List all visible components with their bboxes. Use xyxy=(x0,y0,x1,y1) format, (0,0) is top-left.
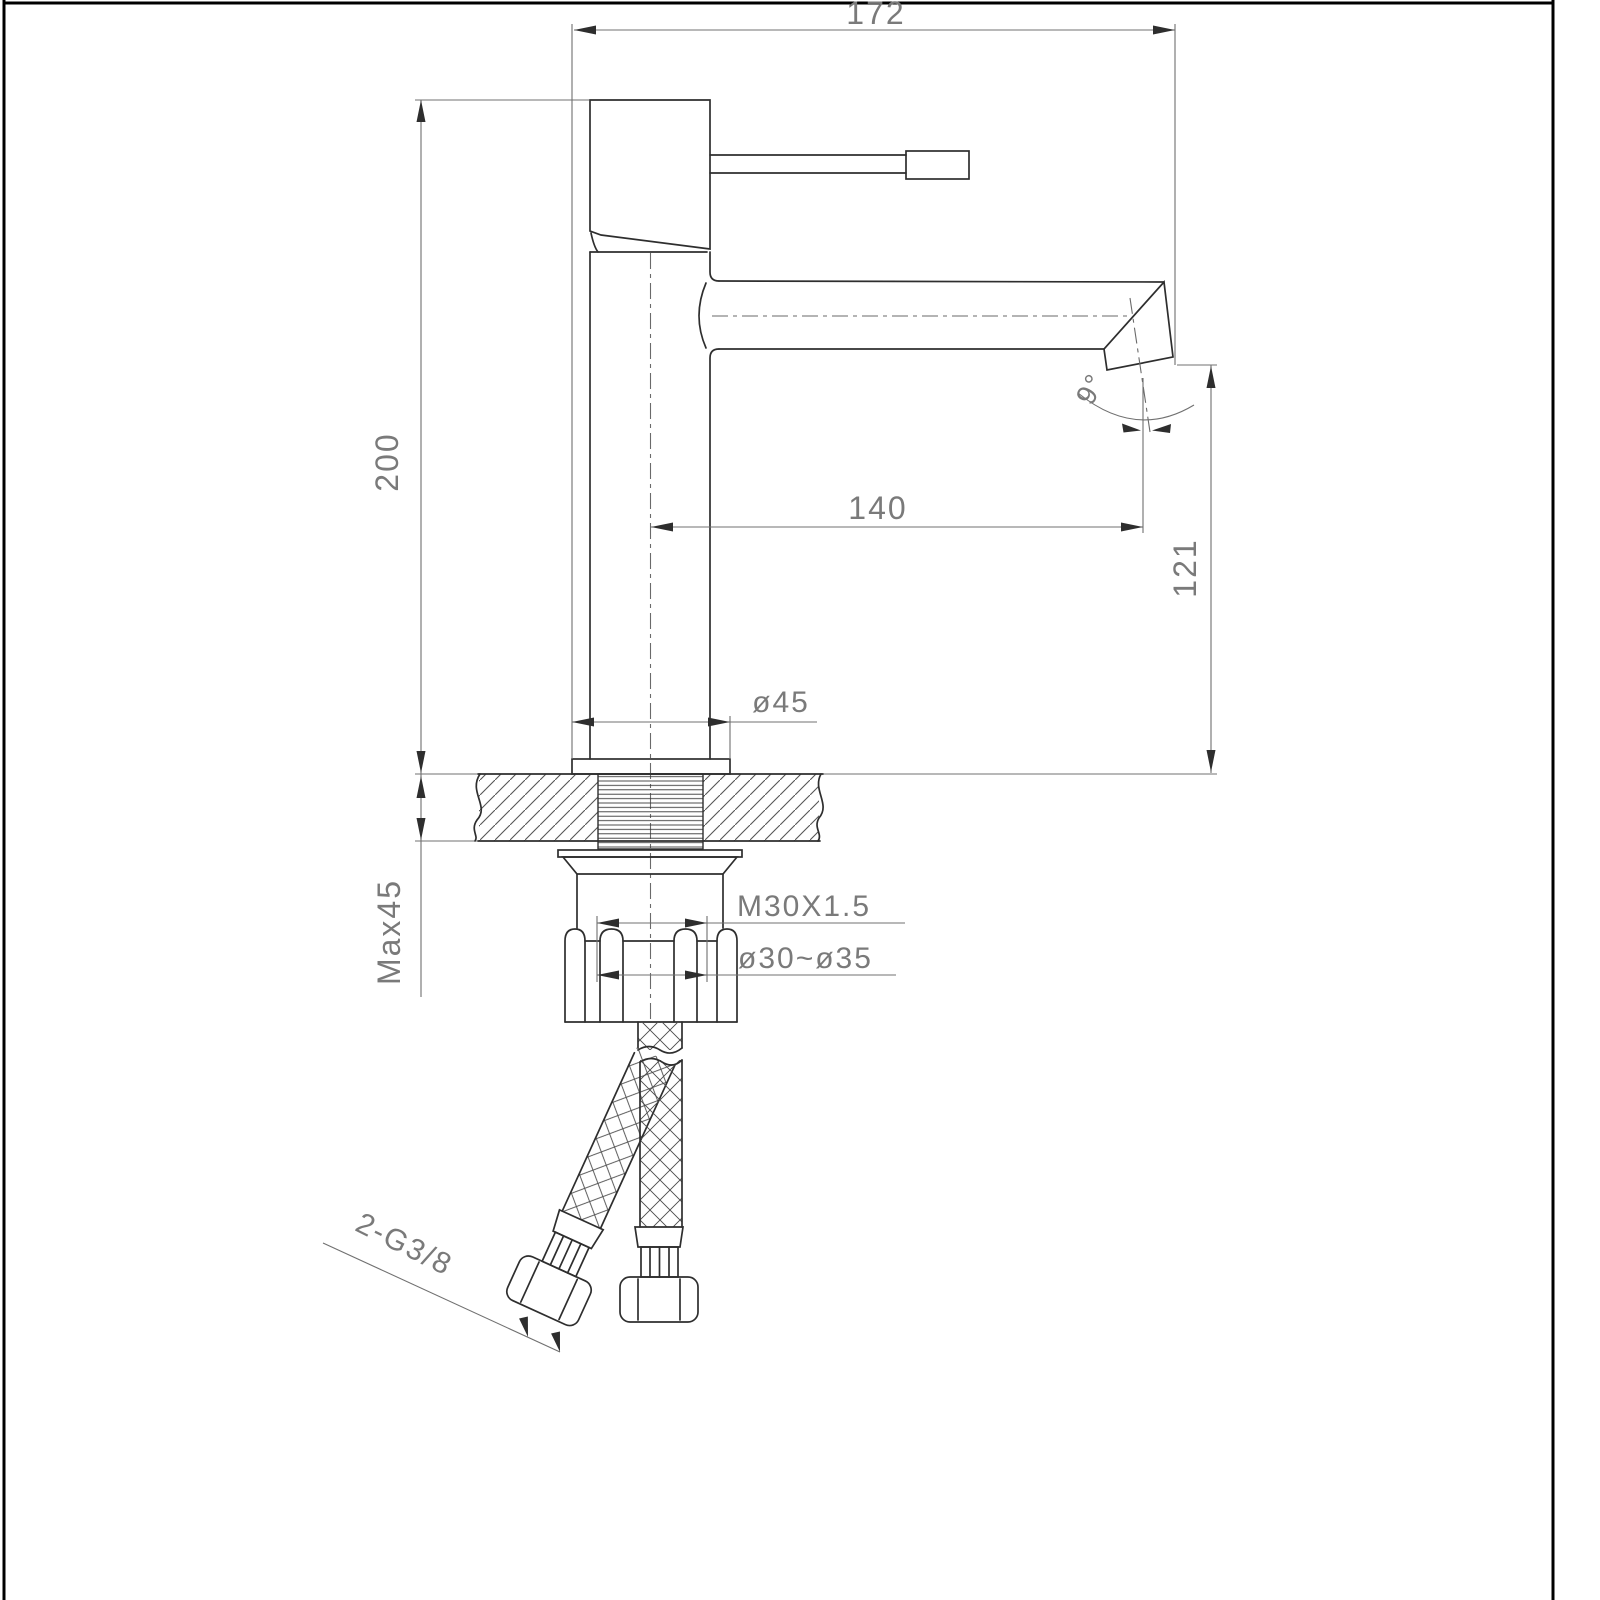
hose-right-collar xyxy=(635,1227,683,1247)
dim-hole-diameter: ø30~ø35 xyxy=(597,942,896,980)
hose-right-hex-nut xyxy=(620,1277,698,1322)
dim-outlet-angle: 9° xyxy=(1070,368,1194,433)
dim-label-overall-width: 172 xyxy=(846,0,905,31)
counter-cross-section xyxy=(415,774,1217,841)
spout xyxy=(699,281,1173,370)
faucet-body-outline xyxy=(572,100,1173,774)
dim-spout-reach: 140 xyxy=(651,378,1143,533)
dim-label-thread-size: M30X1.5 xyxy=(737,890,871,923)
dim-base-diameter: ø45 xyxy=(572,686,817,759)
dim-hose-connection: 2-G3/8 xyxy=(323,1207,570,1352)
spout-aerator-tip xyxy=(1104,282,1173,370)
faucet-technical-drawing: 172 200 Max45 ø45 140 121 xyxy=(0,0,1600,1600)
dim-label-hose-connection: 2-G3/8 xyxy=(350,1207,458,1283)
center-lines xyxy=(651,253,1151,1022)
lever-rod xyxy=(710,155,906,173)
dim-label-total-height: 200 xyxy=(369,432,405,491)
dim-label-outlet-height: 121 xyxy=(1167,538,1203,597)
dim-label-hole-diameter: ø30~ø35 xyxy=(738,942,873,975)
dim-label-max-mount-thickness: Max45 xyxy=(371,879,407,985)
dim-label-outlet-angle: 9° xyxy=(1070,368,1112,410)
threaded-shank xyxy=(598,774,703,849)
dim-total-height: 200 xyxy=(369,100,589,997)
flexible-hoses xyxy=(504,1022,698,1329)
dim-label-spout-reach: 140 xyxy=(848,490,907,526)
dim-outlet-height: 121 xyxy=(1167,365,1217,773)
dim-label-base-diameter: ø45 xyxy=(752,686,810,719)
lever-grip xyxy=(906,151,969,179)
dim-max-mount-thickness: Max45 xyxy=(371,776,426,985)
handle-knob xyxy=(590,100,710,249)
drawing-sheet: 172 200 Max45 ø45 140 121 xyxy=(0,0,1600,1600)
